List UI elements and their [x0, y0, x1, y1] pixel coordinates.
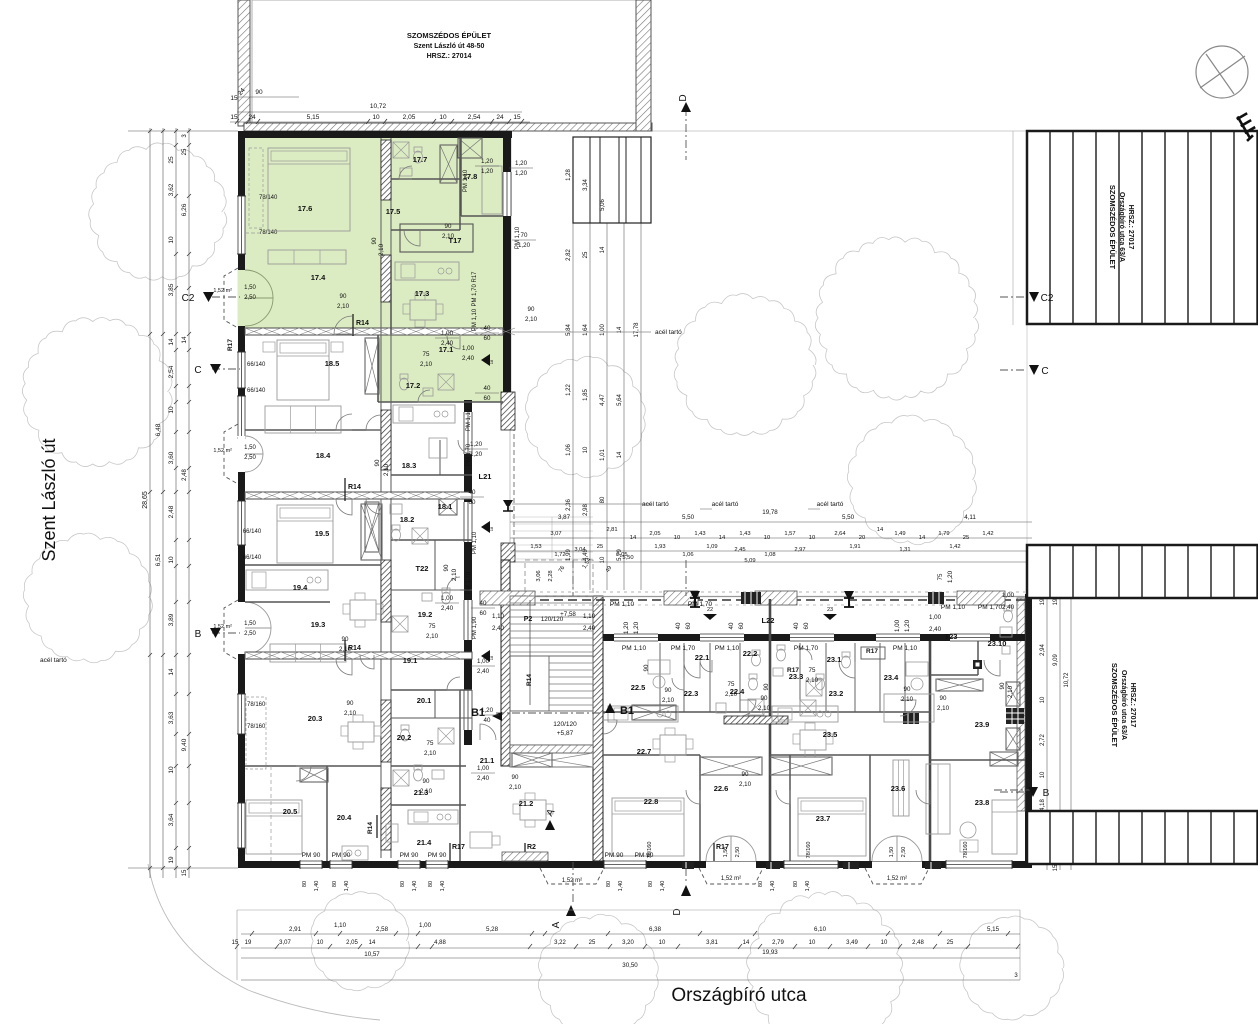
svg-text:22.7: 22.7: [637, 747, 652, 756]
svg-text:2,10: 2,10: [662, 697, 675, 704]
svg-text:80: 80: [600, 496, 606, 503]
svg-text:1,00: 1,00: [462, 345, 475, 352]
svg-text:1,00: 1,00: [441, 595, 454, 602]
svg-text:40: 40: [728, 622, 735, 629]
svg-text:R17: R17: [227, 339, 234, 351]
svg-text:L22: L22: [762, 616, 775, 625]
svg-text:1,40: 1,40: [660, 881, 666, 892]
svg-text:19.2: 19.2: [418, 610, 433, 619]
svg-text:80: 80: [400, 881, 406, 887]
svg-text:5,50: 5,50: [682, 514, 695, 521]
svg-text:1,20: 1,20: [623, 621, 630, 634]
svg-text:1,93: 1,93: [654, 544, 665, 550]
svg-text:1,40: 1,40: [344, 881, 350, 892]
svg-text:10: 10: [317, 940, 324, 946]
svg-text:2,54: 2,54: [468, 114, 481, 121]
svg-text:1,49: 1,49: [894, 531, 905, 537]
svg-text:66/140: 66/140: [247, 362, 266, 368]
svg-text:1,52 m²: 1,52 m²: [721, 876, 741, 882]
svg-text:19,93: 19,93: [762, 949, 778, 956]
svg-text:1,40: 1,40: [314, 881, 320, 892]
svg-text:23.7: 23.7: [816, 814, 831, 823]
svg-text:78/160: 78/160: [647, 842, 653, 859]
svg-text:2,97: 2,97: [794, 547, 805, 553]
svg-text:A: A: [551, 921, 562, 928]
svg-text:D: D: [678, 94, 689, 101]
svg-text:90: 90: [374, 459, 381, 466]
svg-text:1,00: 1,00: [441, 330, 454, 337]
svg-text:3,34: 3,34: [583, 179, 589, 191]
svg-text:75: 75: [937, 573, 944, 580]
svg-text:10: 10: [168, 556, 175, 564]
svg-text:90: 90: [643, 664, 650, 671]
svg-text:90: 90: [763, 683, 770, 690]
svg-text:2,50: 2,50: [244, 631, 256, 637]
svg-text:15: 15: [230, 95, 238, 102]
svg-text:1,00: 1,00: [929, 614, 942, 621]
svg-text:19.4: 19.4: [293, 583, 308, 592]
svg-text:22: 22: [707, 607, 713, 613]
svg-text:90: 90: [528, 306, 535, 313]
svg-text:2,50: 2,50: [901, 847, 907, 858]
svg-text:C2: C2: [1041, 293, 1054, 304]
svg-text:4,18: 4,18: [1040, 799, 1046, 811]
svg-text:R14: R14: [526, 674, 533, 686]
svg-text:acél tartó: acél tartó: [40, 657, 67, 664]
svg-text:14: 14: [600, 246, 606, 253]
svg-text:PM 1,10: PM 1,10: [622, 645, 647, 652]
svg-text:2,28: 2,28: [548, 570, 554, 581]
svg-text:80: 80: [428, 881, 434, 887]
svg-text:15: 15: [230, 114, 238, 121]
svg-text:2,82: 2,82: [566, 249, 572, 261]
svg-text:Szent László út: Szent László út: [39, 438, 59, 561]
svg-text:PM 90: PM 90: [302, 852, 321, 859]
svg-text:1,20: 1,20: [481, 707, 494, 714]
svg-text:1,06: 1,06: [682, 552, 693, 558]
svg-text:23.1: 23.1: [827, 655, 842, 664]
svg-text:90: 90: [665, 687, 672, 694]
svg-text:90: 90: [347, 700, 354, 707]
svg-text:2,10: 2,10: [420, 361, 433, 368]
svg-text:HRSZ.: 27017: HRSZ.: 27017: [1129, 683, 1136, 728]
svg-text:21.2: 21.2: [519, 799, 534, 808]
svg-text:23.2: 23.2: [829, 689, 844, 698]
svg-text:1,00: 1,00: [1002, 592, 1015, 599]
svg-text:10,72: 10,72: [1064, 672, 1070, 688]
svg-text:10: 10: [168, 766, 175, 774]
svg-text:80: 80: [302, 881, 308, 887]
svg-text:10: 10: [168, 236, 175, 244]
svg-text:40: 40: [675, 622, 682, 629]
svg-text:2,40: 2,40: [583, 625, 596, 632]
svg-text:18.1: 18.1: [438, 502, 453, 511]
svg-text:2,10: 2,10: [337, 303, 350, 310]
svg-text:80: 80: [648, 881, 654, 887]
svg-text:80: 80: [606, 881, 612, 887]
svg-text:25: 25: [947, 940, 954, 946]
svg-text:1,20: 1,20: [481, 168, 494, 175]
svg-text:1,20: 1,20: [947, 570, 954, 583]
svg-text:10: 10: [764, 535, 770, 541]
svg-text:2,40: 2,40: [492, 625, 505, 632]
svg-text:80: 80: [758, 881, 764, 887]
svg-text:1,20: 1,20: [515, 170, 528, 177]
svg-text:2,10: 2,10: [525, 316, 538, 323]
svg-text:2,05: 2,05: [649, 531, 660, 537]
svg-text:90: 90: [904, 686, 911, 693]
svg-text:1,42: 1,42: [982, 531, 993, 537]
svg-text:1,20: 1,20: [470, 441, 483, 448]
svg-text:23.8: 23.8: [975, 798, 990, 807]
svg-text:2,10: 2,10: [424, 750, 437, 757]
svg-text:1,50: 1,50: [244, 621, 256, 627]
svg-text:4,11: 4,11: [964, 514, 976, 521]
svg-text:5,06: 5,06: [600, 199, 606, 211]
svg-text:1,20: 1,20: [515, 160, 528, 167]
svg-text:23.9: 23.9: [975, 720, 990, 729]
svg-text:75: 75: [809, 667, 816, 674]
svg-text:R14: R14: [367, 822, 374, 834]
svg-text:1,40: 1,40: [618, 881, 624, 892]
svg-text:5,50: 5,50: [622, 555, 633, 561]
svg-text:25: 25: [597, 544, 603, 550]
svg-text:60: 60: [738, 622, 745, 629]
svg-text:17.7: 17.7: [413, 155, 428, 164]
svg-text:R14: R14: [348, 645, 361, 652]
svg-text:1,72: 1,72: [554, 552, 565, 558]
svg-text:19.1: 19.1: [403, 656, 418, 665]
svg-text:T23: T23: [945, 632, 958, 641]
svg-text:1,40: 1,40: [412, 881, 418, 892]
svg-text:L21: L21: [479, 472, 492, 481]
svg-text:14: 14: [168, 338, 175, 346]
svg-text:14: 14: [719, 535, 726, 541]
svg-text:PM 1,10: PM 1,10: [715, 645, 740, 652]
svg-text:PM 90: PM 90: [605, 852, 624, 859]
svg-text:78/160: 78/160: [963, 842, 969, 859]
svg-text:2,10: 2,10: [442, 233, 455, 240]
svg-text:1,28: 1,28: [566, 169, 572, 181]
svg-text:17.4: 17.4: [311, 273, 326, 282]
svg-text:90: 90: [340, 293, 347, 300]
svg-text:+5,87: +5,87: [557, 730, 574, 737]
svg-text:90: 90: [742, 771, 749, 778]
svg-text:20.4: 20.4: [337, 813, 352, 822]
svg-text:3,07: 3,07: [279, 940, 291, 946]
svg-text:60: 60: [685, 622, 692, 629]
svg-text:2,40: 2,40: [929, 626, 942, 633]
svg-text:PM 1,70: PM 1,70: [671, 645, 696, 652]
svg-text:10: 10: [1040, 696, 1046, 703]
svg-text:19.3: 19.3: [311, 620, 326, 629]
svg-text:78/160: 78/160: [806, 842, 812, 859]
svg-text:1,08: 1,08: [764, 552, 775, 558]
svg-text:22.8: 22.8: [644, 797, 659, 806]
svg-text:2,10: 2,10: [420, 788, 433, 795]
svg-text:19: 19: [168, 856, 175, 864]
svg-text:2,81: 2,81: [606, 527, 617, 533]
svg-text:17,78: 17,78: [634, 322, 640, 338]
svg-text:90: 90: [761, 695, 768, 702]
svg-text:14: 14: [369, 940, 376, 946]
svg-text:1,40: 1,40: [805, 881, 811, 892]
svg-text:14: 14: [181, 336, 188, 344]
svg-text:PM 1,70: PM 1,70: [794, 645, 819, 652]
svg-text:40: 40: [484, 325, 491, 332]
svg-text:2,05: 2,05: [346, 940, 358, 946]
svg-text:1,42: 1,42: [949, 544, 960, 550]
svg-text:14: 14: [919, 535, 926, 541]
svg-text:2,58: 2,58: [376, 926, 389, 933]
svg-text:Országbíró utca: Országbíró utca: [671, 985, 807, 1006]
svg-text:21.4: 21.4: [417, 838, 432, 847]
svg-text:5,15: 5,15: [987, 926, 1000, 933]
svg-text:1,20: 1,20: [904, 619, 911, 632]
svg-text:2,10: 2,10: [1007, 685, 1014, 698]
svg-text:1,01: 1,01: [600, 449, 606, 461]
svg-text:18.2: 18.2: [400, 515, 415, 524]
svg-text:1,00: 1,00: [600, 324, 606, 336]
svg-text:17.3: 17.3: [415, 289, 430, 298]
svg-text:3,63: 3,63: [168, 711, 175, 724]
svg-text:14: 14: [617, 451, 623, 458]
svg-text:9,09: 9,09: [1053, 654, 1059, 666]
svg-text:B1: B1: [620, 705, 634, 717]
svg-text:14: 14: [743, 940, 750, 946]
svg-text:2,54: 2,54: [168, 365, 175, 378]
svg-text:1,10: 1,10: [334, 922, 347, 929]
svg-text:2,10: 2,10: [725, 691, 738, 698]
svg-text:1,10: 1,10: [492, 613, 505, 620]
svg-text:2,10: 2,10: [451, 568, 458, 581]
svg-text:3,81: 3,81: [706, 940, 718, 946]
svg-text:3,49: 3,49: [846, 940, 858, 946]
svg-text:2,45: 2,45: [734, 547, 745, 553]
svg-text:20.5: 20.5: [283, 807, 298, 816]
svg-text:1,53: 1,53: [530, 544, 541, 550]
svg-text:18: 18: [489, 655, 494, 660]
svg-text:2,50: 2,50: [244, 295, 256, 301]
svg-text:R17: R17: [787, 667, 799, 674]
svg-text:40: 40: [484, 717, 491, 724]
svg-text:14: 14: [168, 668, 175, 676]
svg-text:SZOMSZÉDOS ÉPÜLET: SZOMSZÉDOS ÉPÜLET: [1110, 663, 1119, 748]
svg-text:17.5: 17.5: [386, 207, 401, 216]
svg-text:23.6: 23.6: [891, 784, 906, 793]
svg-text:B: B: [1043, 788, 1050, 799]
svg-text:2,10: 2,10: [806, 677, 819, 684]
svg-text:20.2: 20.2: [397, 733, 412, 742]
svg-text:19.5: 19.5: [315, 529, 330, 538]
svg-text:acél tartó: acél tartó: [642, 501, 669, 508]
svg-text:90: 90: [443, 564, 450, 571]
svg-text:90: 90: [445, 223, 452, 230]
svg-text:22.6: 22.6: [714, 784, 729, 793]
svg-text:PM 1,10: PM 1,10: [893, 645, 918, 652]
svg-text:R17: R17: [716, 844, 729, 851]
svg-text:2,36: 2,36: [566, 499, 572, 511]
svg-text:PM 1,10: PM 1,10: [466, 408, 472, 431]
svg-text:3,62: 3,62: [168, 183, 175, 196]
svg-text:23.4: 23.4: [884, 673, 899, 682]
svg-text:1,00: 1,00: [477, 765, 490, 772]
svg-text:acél tartó: acél tartó: [817, 501, 844, 508]
svg-text:3,22: 3,22: [554, 940, 566, 946]
svg-text:66/140: 66/140: [243, 555, 262, 561]
svg-text:1,31: 1,31: [899, 547, 910, 553]
svg-text:18: 18: [489, 526, 494, 531]
svg-text:1,52 m²: 1,52 m²: [213, 448, 232, 454]
svg-text:PM 1,70 R17: PM 1,70 R17: [472, 271, 478, 307]
svg-text:3,06: 3,06: [536, 570, 542, 581]
svg-text:3,89: 3,89: [168, 613, 175, 626]
svg-text:10: 10: [809, 535, 815, 541]
svg-text:25: 25: [168, 156, 175, 164]
svg-text:1,43: 1,43: [694, 531, 705, 537]
svg-text:23: 23: [827, 607, 833, 613]
svg-text:1,10: 1,10: [583, 613, 596, 620]
svg-text:PM 1,10: PM 1,10: [472, 531, 478, 554]
svg-text:R17: R17: [452, 844, 465, 851]
svg-text:1,52 m²: 1,52 m²: [213, 288, 232, 294]
svg-text:23.10: 23.10: [988, 639, 1007, 648]
svg-text:25: 25: [182, 148, 188, 155]
svg-text:2,40: 2,40: [462, 355, 475, 362]
svg-text:1,99: 1,99: [566, 549, 572, 561]
svg-text:C2: C2: [182, 293, 195, 304]
svg-text:3,04: 3,04: [574, 547, 586, 553]
svg-text:78/160: 78/160: [247, 702, 266, 708]
svg-text:acél tartó: acél tartó: [655, 329, 682, 336]
svg-text:120/120: 120/120: [553, 721, 577, 728]
svg-text:2,40: 2,40: [477, 668, 490, 675]
svg-text:1,52 m²: 1,52 m²: [562, 878, 582, 884]
svg-text:60: 60: [484, 395, 491, 402]
svg-text:1,50: 1,50: [889, 847, 895, 858]
svg-text:25: 25: [589, 940, 596, 946]
svg-text:3,87: 3,87: [558, 514, 571, 521]
svg-text:22.1: 22.1: [695, 653, 710, 662]
svg-text:10: 10: [1040, 771, 1046, 778]
svg-text:6,48: 6,48: [155, 423, 162, 436]
svg-text:90: 90: [371, 237, 378, 244]
svg-text:40: 40: [480, 600, 487, 607]
svg-text:2,40: 2,40: [441, 605, 454, 612]
svg-text:R17: R17: [866, 648, 878, 655]
svg-text:Országbíró utca 63/A: Országbíró utca 63/A: [1120, 670, 1127, 740]
svg-text:2,79: 2,79: [772, 940, 784, 946]
svg-text:3,60: 3,60: [168, 451, 175, 464]
svg-text:2,48: 2,48: [168, 505, 175, 518]
svg-text:C: C: [194, 365, 201, 376]
svg-text:3,07: 3,07: [550, 531, 561, 537]
svg-text:66/140: 66/140: [243, 529, 262, 535]
svg-text:PM 1,10: PM 1,10: [463, 169, 469, 192]
svg-text:40: 40: [484, 385, 491, 392]
svg-text:PM 1,70: PM 1,70: [466, 571, 472, 594]
svg-text:20.1: 20.1: [417, 696, 432, 705]
svg-text:60: 60: [484, 335, 491, 342]
svg-text:75: 75: [728, 681, 735, 688]
svg-text:Országbíró utca 63/A: Országbíró utca 63/A: [1118, 192, 1125, 262]
svg-text:B: B: [195, 629, 202, 640]
svg-text:1,85: 1,85: [583, 389, 589, 401]
svg-text:2,10: 2,10: [739, 781, 752, 788]
svg-text:5,28: 5,28: [486, 926, 499, 933]
svg-text:22.2: 22.2: [743, 649, 758, 658]
svg-text:60: 60: [469, 499, 476, 506]
svg-text:60: 60: [480, 610, 487, 617]
svg-text:acél tartó: acél tartó: [712, 501, 739, 508]
svg-text:6,26: 6,26: [181, 203, 188, 216]
svg-text:22.3: 22.3: [684, 689, 699, 698]
svg-text:2,50: 2,50: [735, 847, 741, 858]
svg-text:18.3: 18.3: [402, 461, 417, 470]
svg-text:2,40: 2,40: [441, 340, 454, 347]
svg-text:2,10: 2,10: [937, 705, 950, 712]
svg-text:1,91: 1,91: [849, 544, 860, 550]
svg-text:5,64: 5,64: [617, 394, 623, 406]
svg-text:D: D: [672, 908, 683, 915]
svg-text:1,09: 1,09: [706, 544, 717, 550]
svg-text:HRSZ.: 27014: HRSZ.: 27014: [427, 53, 472, 60]
svg-text:2,48: 2,48: [912, 940, 924, 946]
svg-text:PM 90: PM 90: [332, 852, 351, 859]
svg-text:6,38: 6,38: [649, 926, 662, 933]
svg-text:1,20: 1,20: [481, 158, 494, 165]
svg-text:1,22: 1,22: [566, 384, 572, 396]
svg-text:2,91: 2,91: [289, 926, 302, 933]
svg-text:30,50: 30,50: [622, 962, 638, 969]
svg-text:5,84: 5,84: [566, 324, 572, 336]
svg-text:1,40: 1,40: [770, 881, 776, 892]
svg-text:PM 1,10: PM 1,10: [472, 308, 478, 331]
svg-text:78/160: 78/160: [247, 724, 266, 730]
svg-text:10: 10: [659, 940, 666, 946]
svg-text:22.5: 22.5: [631, 683, 646, 692]
svg-text:+7,58: +7,58: [560, 611, 576, 618]
svg-text:C: C: [1041, 366, 1048, 377]
svg-text:66/140: 66/140: [247, 388, 266, 394]
svg-text:70: 70: [521, 232, 528, 239]
svg-text:SZOMSZÉDOS ÉPÜLET: SZOMSZÉDOS ÉPÜLET: [407, 31, 492, 40]
svg-text:21.1: 21.1: [480, 756, 495, 765]
svg-text:R14: R14: [348, 484, 361, 491]
svg-text:24: 24: [496, 114, 504, 121]
svg-text:4,47: 4,47: [600, 394, 606, 406]
svg-text:10: 10: [881, 940, 888, 946]
svg-text:90: 90: [940, 695, 947, 702]
svg-text:10: 10: [168, 406, 175, 414]
svg-text:2,40: 2,40: [1002, 604, 1015, 611]
svg-text:5,09: 5,09: [744, 558, 755, 564]
svg-text:17.6: 17.6: [298, 204, 313, 213]
svg-text:25: 25: [583, 251, 589, 258]
svg-text:40: 40: [469, 489, 476, 496]
svg-text:4,88: 4,88: [434, 940, 446, 946]
svg-text:1,40: 1,40: [440, 881, 446, 892]
svg-text:1,64: 1,64: [583, 324, 589, 336]
svg-text:5,15: 5,15: [307, 114, 320, 121]
svg-text:SZOMSZÉDOS ÉPÜLET: SZOMSZÉDOS ÉPÜLET: [1108, 185, 1117, 270]
svg-text:3,20: 3,20: [622, 940, 634, 946]
svg-text:2,64: 2,64: [834, 531, 846, 537]
svg-text:1,43: 1,43: [739, 531, 750, 537]
svg-text:90: 90: [423, 778, 430, 785]
svg-text:PM 1,10: PM 1,10: [941, 604, 966, 611]
svg-text:18.5: 18.5: [325, 359, 340, 368]
